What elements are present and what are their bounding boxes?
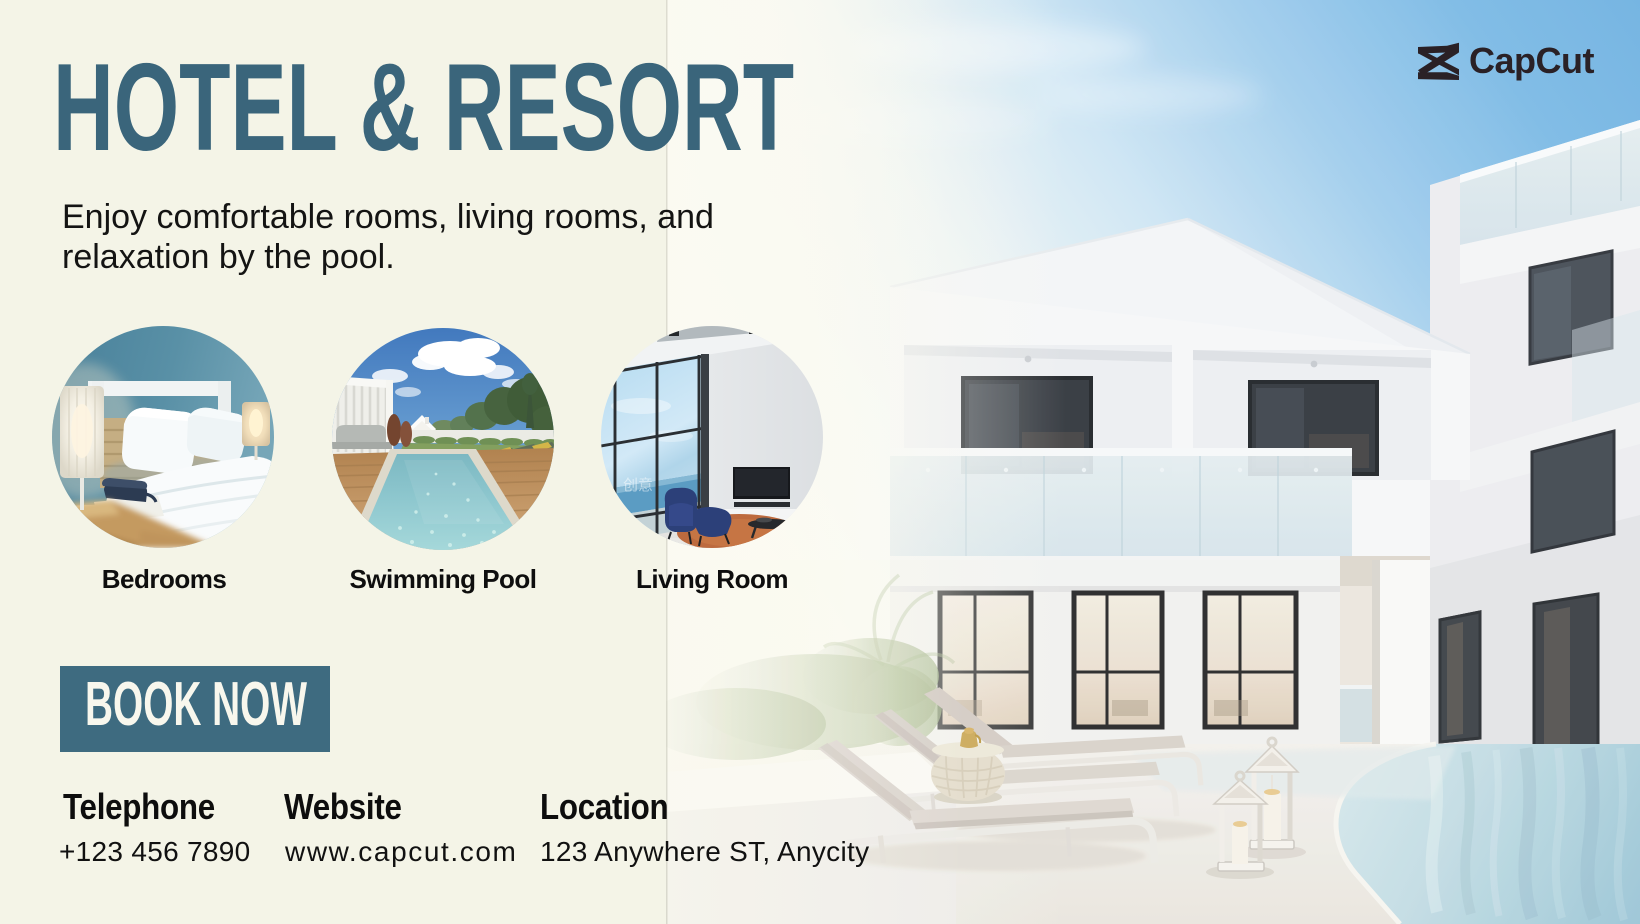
svg-text:创意: 创意 <box>623 476 653 494</box>
